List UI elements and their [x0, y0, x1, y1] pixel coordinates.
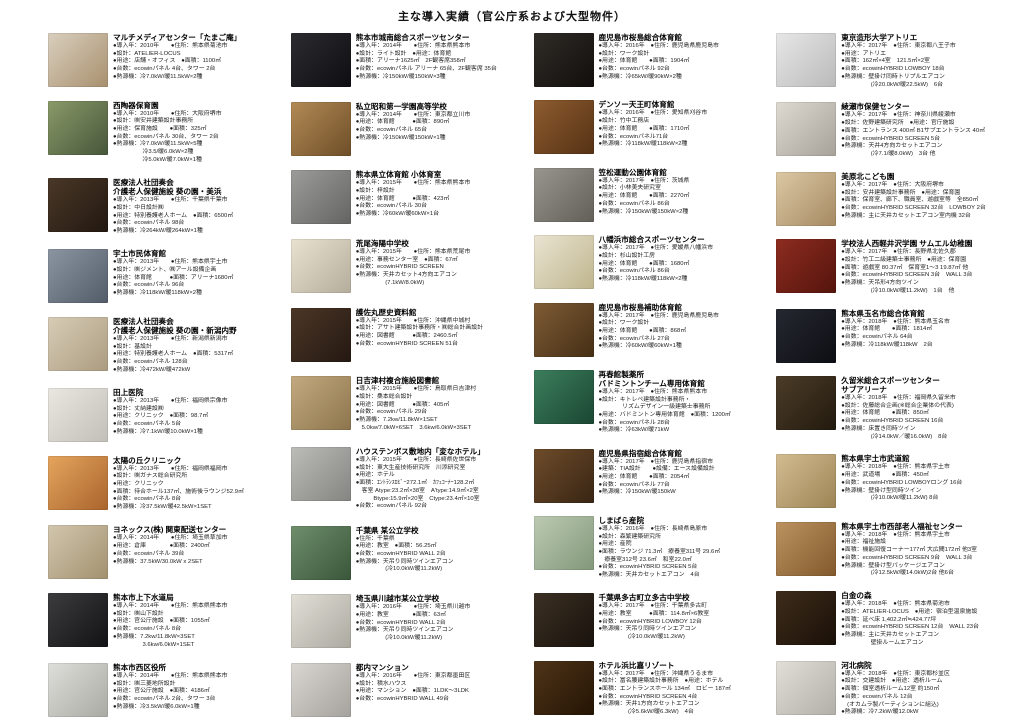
facility-detail-line: ●用途：図書館 ●面積：2460.5㎡	[356, 333, 527, 341]
facility-detail-line: ●設計：竹工二級建築士事務所 ●用途：保育園	[841, 257, 1012, 265]
case-entry: 都内マンション ●導入年：2016年 ●住所：東京都墨田区●設計：積水ハウス●用…	[291, 663, 527, 717]
facility-photo	[534, 449, 594, 503]
page-header: 主な導入実績（官公庁系および大型物件）	[0, 0, 1024, 25]
facility-detail-line: ●建築：TIA設計 ●設備：エース設備設計	[599, 466, 770, 474]
facility-info: 鹿児島市桜島補助体育館 ●導入年：2017年 ●住所：鹿児島県鹿児島市●設計：ワ…	[599, 303, 770, 357]
facility-detail-line: ●熱源機：天井カセット4方向エアコン	[356, 272, 527, 280]
facility-name: ハウステンボス敷地内「変なホテル」	[356, 447, 527, 456]
facility-detail-line: ●台数：ecowinHYBRID SCREEN 12台 WALL 23台	[841, 624, 1012, 632]
facility-detail-line: ●面積：アリーナ1625㎡ 2F観客席358㎡	[356, 58, 527, 66]
case-entry: 太陽の丘クリニック ●導入年：2013年 ●住所：福岡県福岡市●設計：㈱ガナス総…	[48, 456, 284, 512]
facility-photo	[534, 168, 594, 222]
facility-detail-line: ●台数：ecowinパネル 98台	[113, 220, 284, 228]
facility-info: 宇土市民体育館 ●導入年：2013年 ●住所：熊本県宇土市●設計：㈱ジメント、㈱…	[113, 249, 284, 303]
facility-detail-line: 冷5.0kW/暖7.0kW×1種	[113, 157, 284, 165]
facility-detail-line: ●熱源機：冷118kW/暖118kW×2種	[599, 141, 770, 149]
case-entry: デンソー天王町体育館 ●導入年：2016年 ●住所：愛知県刈谷市●設計：竹中工務…	[534, 100, 770, 154]
facility-detail-line: ●用途：体育館 ●面積：2054㎡	[599, 474, 770, 482]
facility-detail-line: ●導入年：2015年 ●住所：熊本県熊本市	[356, 180, 527, 188]
facility-detail-line: (冷10.0kW/暖11.2kW)	[356, 566, 527, 574]
facility-photo	[776, 591, 836, 645]
facility-detail-line: ●台数：ecowinパネル 39台	[113, 551, 284, 559]
facility-name: 医療法人社団奏会 介護老人保健施設 葵の園・美浜	[113, 178, 284, 196]
facility-detail-line: ●熱源機：主に天井カセットエアコン	[841, 632, 1012, 640]
facility-detail-line: ●導入年：2014年 ●住所：熊本県熊本市	[113, 673, 284, 681]
facility-info: 熊本市城南総合スポーツセンター ●導入年：2014年 ●住所：熊本県熊本市●設計…	[356, 33, 527, 87]
facility-info: 埼玉県川越市某公立学校 ●導入年：2016年 ●住所：埼玉県川越市●用途：教室 …	[356, 594, 527, 648]
facility-name: 荒尾海陽中学校	[356, 239, 527, 248]
facility-name: 宇土市民体育館	[113, 249, 284, 258]
facility-detail-line: ●台数：ecowinパネル 4台、タワー 2台	[113, 66, 284, 74]
facility-name: 日吉津村複合施設図書館	[356, 376, 527, 385]
facility-detail-line: ●面積：エントランス 400㎡ B1サブエントランス 40㎡	[841, 128, 1012, 136]
facility-detail-line: ●熱源機：冷118kW/暖118kW 2台	[841, 342, 1012, 350]
facility-detail-line: ●台数：ecowinパネル 64台	[841, 334, 1012, 342]
facility-detail-line: ●導入年：2017年 ●住所：大阪府堺市	[841, 182, 1012, 190]
facility-photo	[291, 663, 351, 717]
facility-detail-line: ●導入年：2010年 ●住所：熊本県菊池市	[113, 43, 284, 51]
facility-detail-line: ●用途：マンション ●面積：1LDK〜3LDK	[356, 688, 527, 696]
facility-detail-line: ●導入年：2016年 ●住所：埼玉県川越市	[356, 604, 527, 612]
case-entry: 八幡浜市総合スポーツセンター ●導入年：2017年 ●住所：愛媛県八幡浜市●設計…	[534, 235, 770, 289]
case-entry: 綾瀬市保健センター ●導入年：2017年 ●住所：神奈川県綾瀬市●設計：佐野建築…	[776, 102, 1012, 158]
facility-detail-line: 3.6kw/6.0kW×1SET	[113, 642, 284, 650]
facility-name: 鹿児島市桜島総合体育館	[599, 33, 770, 42]
facility-photo	[776, 522, 836, 576]
facility-detail-line: ●熱源機：冷264kW/暖264kW×1種	[113, 228, 284, 236]
facility-detail-line: ●台数：ecowinパネル 12台	[841, 694, 1012, 702]
facility-detail-line: ●台数：ecowinパネル 2台、タワー 3台	[113, 696, 284, 704]
facility-photo	[48, 249, 108, 303]
facility-info: 熊本県宇土市西部老人福祉センター ●導入年：2018年 ●住所：熊本県宇土市●用…	[841, 522, 1012, 578]
facility-detail-line: ●熱源機：冷118kW/暖118kW×2種	[599, 276, 770, 284]
facility-photo	[776, 309, 836, 363]
facility-name: 白金の森	[841, 591, 1012, 600]
facility-detail-line: ●熱源機：7.2kw/11.8kW×3SET	[113, 634, 284, 642]
facility-detail-line: ●用途：教室 ●面積：114.8㎡×6教室	[599, 611, 770, 619]
facility-detail-line: ●導入年：2018年 ●住所：福岡県久留米市	[841, 395, 1012, 403]
facility-detail-line: ●導入年：2017年 ●住所：東京都八王子市	[841, 43, 1012, 51]
facility-photo	[776, 376, 836, 430]
facility-detail-line: ●熱源機：天吊り同時ツインエアコン	[356, 627, 527, 635]
facility-name: 田上医院	[113, 388, 284, 397]
facility-photo	[776, 102, 836, 156]
facility-detail-line: ●導入年：2013年 ●住所：熊本県宇土市	[113, 259, 284, 267]
facility-detail-line: ●熱源機：冷150kW/暖150kW×2種	[599, 209, 770, 217]
facility-name: 東京造形大学アトリエ	[841, 33, 1012, 42]
facility-photo	[534, 370, 594, 424]
facility-detail-line: ●熱源機：天井4方向カセットエアコン	[841, 143, 1012, 151]
facility-detail-line: ●面積：個室透析ルーム12室 約150㎡	[841, 686, 1012, 694]
case-entry: 熊本市城南総合スポーツセンター ●導入年：2014年 ●住所：熊本県熊本市●設計…	[291, 33, 527, 87]
facility-detail-line: ●導入年：2017年 ●住所：長野県北佐久郡	[841, 249, 1012, 257]
facility-detail-line: ●台数：ecowinパネル 8台	[113, 626, 284, 634]
facility-detail-line: ●設計：冨名腰建築設計事務所 ●用途：ホテル	[599, 678, 770, 686]
facility-detail-line: ●導入年：2017年 ●住所：熊本県熊本市	[599, 389, 770, 397]
facility-info: 八幡浜市総合スポーツセンター ●導入年：2017年 ●住所：愛媛県八幡浜市●設計…	[599, 235, 770, 289]
case-entry: 医療法人社団奏会 介護老人保健施設 葵の園・美浜 ●導入年：2013年 ●住所：…	[48, 178, 284, 236]
facility-name: デンソー天王町体育館	[599, 100, 770, 109]
case-entry: 熊本県宇土市西部老人福祉センター ●導入年：2018年 ●住所：熊本県宇土市●用…	[776, 522, 1012, 578]
case-entry: 鹿児島市桜島総合体育館 ●導入年：2016年 ●住所：鹿児島県鹿児島市●設計：ワ…	[534, 33, 770, 87]
case-entry: 医療法人社団奏会 介護老人保健施設 葵の園・新潟内野 ●導入年：2013年 ●住…	[48, 317, 284, 375]
facility-photo	[291, 376, 351, 430]
facility-detail-line: ●面積：162㎡×4室 121.5㎡×2室	[841, 58, 1012, 66]
facility-detail-line: ●熱源機：冷7.2kW/暖12.0kW	[841, 709, 1012, 717]
facility-photo	[48, 317, 108, 371]
facility-photo	[48, 663, 108, 717]
facility-detail-line: ●台数：ecowinパネル 65台	[356, 127, 527, 135]
facility-photo	[291, 526, 351, 580]
facility-detail-line: ●用途：クリニック	[113, 481, 284, 489]
facility-name: 河北病院	[841, 661, 1012, 670]
facility-detail-line: (冷12.5kW/暖14.0kW)2台 他6台	[841, 570, 1012, 578]
facility-detail-line: ●導入年：2014年 ●住所：熊本県熊本市	[113, 603, 284, 611]
case-entry: 白金の森 ●導入年：2018年 ●住所：熊本県菊池市●設計：ATELIER-LO…	[776, 591, 1012, 647]
facility-detail-line: ●設計：㈱ガナス総合研究所	[113, 473, 284, 481]
facility-name: 熊本県宇土市西部老人福祉センター	[841, 522, 1012, 531]
facility-detail-line: ●面積：保育室、廊下、職員室、遊戯室等 全850㎡	[841, 197, 1012, 205]
facility-detail-line: ●用途：店舗・オフィス ●面積：1100㎡	[113, 58, 284, 66]
facility-name: 埼玉県川越市某公立学校	[356, 594, 527, 603]
facility-detail-line: ●熱源機：冷7.1kW/暖10.0kW×1種	[113, 429, 284, 437]
facility-name: ホテル浜比嘉リゾート	[599, 661, 770, 670]
facility-info: 熊本県宇土市武道館 ●導入年：2018年 ●住所：熊本県宇土市●用途：武道場 ●…	[841, 454, 1012, 508]
case-entry: 荒尾海陽中学校 ●導入年：2015年 ●住所：熊本県荒尾市●用途：事務センター室…	[291, 239, 527, 293]
facility-detail-line: ●台数：ecowinHYBRID SCREEN 16台	[841, 418, 1012, 426]
facility-info: 私立昭和第一学園高等学校 ●導入年：2014年 ●住所：東京都立川市●用途：体育…	[356, 102, 527, 156]
facility-photo	[291, 33, 351, 87]
case-entry: 鹿児島市桜島補助体育館 ●導入年：2017年 ●住所：鹿児島県鹿児島市●設計：ワ…	[534, 303, 770, 357]
facility-name: 千葉県多古町立多古中学校	[599, 593, 770, 602]
facility-name: 千葉県 某公立学校	[356, 526, 527, 535]
case-entry: 熊本県宇土市武道館 ●導入年：2018年 ●住所：熊本県宇土市●用途：武道場 ●…	[776, 454, 1012, 508]
column-1: マルチメディアセンター「たまご庵」 ●導入年：2010年 ●住所：熊本県菊池市●…	[48, 33, 284, 717]
case-entry: 田上医院 ●導入年：2013年 ●住所：福岡県宗像市●設計：丈納建設㈱●用途：ク…	[48, 388, 284, 442]
facility-detail-line: ●導入年：2013年 ●住所：千葉県千葉市	[113, 197, 284, 205]
case-entry: しまばら産院 ●導入年：2016年 ●住所：長崎県島原市●設計：森繁建築研究所●…	[534, 516, 770, 580]
facility-detail-line: ●台数：ecowinHYBRID WALL 49台	[356, 696, 527, 704]
case-entry: 鹿児島県指宿総合体育館 ●導入年：2017年 ●住所：鹿児島県指宿市●建築：TI…	[534, 449, 770, 503]
facility-detail-line: ●熱源機：冷37.5kW/暖42.5kW×1SET	[113, 504, 284, 512]
facility-photo	[48, 456, 108, 510]
facility-detail-line: ●設計：アサト建築設計事務所・㈱総合計画設計	[356, 325, 527, 333]
facility-detail-line: ●設計：杉山設計工房	[599, 253, 770, 261]
facility-info: 護佐丸歴史資料館 ●導入年：2015年 ●住所：沖縄県中城村●設計：アサト建築設…	[356, 308, 527, 362]
facility-info: 日吉津村複合施設図書館 ●導入年：2015年 ●住所：鳥取県日吉津村●設計：桑本…	[356, 376, 527, 432]
facility-detail-line: (冷14.0kW／暖16.0kW) 8台	[841, 434, 1012, 442]
facility-detail-line: ●台数：ecowinパネル 86台	[599, 268, 770, 276]
facility-detail-line: ●面積：機能回復コーナー177㎡ 大広間172㎡ 他3室	[841, 547, 1012, 555]
facility-detail-line: 冷3.5/暖6.0kW×2種	[113, 149, 284, 157]
facility-detail-line: ●面積：エントランスホール 134㎡ ロビー 187㎡	[599, 686, 770, 694]
facility-detail-line: ●熱源機：冷7.0kW/暖11.5kW×5種	[113, 141, 284, 149]
facility-detail-line: ●用途：教室 ●面積：56.25㎡	[356, 543, 527, 551]
facility-detail-line: ●用途：倉庫 ●面積：2400㎡	[113, 543, 284, 551]
case-entry: 熊本市西区役所 ●導入年：2014年 ●住所：熊本県熊本市●設計：㈱三菱地所設計…	[48, 663, 284, 717]
facility-photo	[291, 102, 351, 156]
facility-name: 私立昭和第一学園高等学校	[356, 102, 527, 111]
facility-info: 千葉県多古町立多古中学校 ●導入年：2017年 ●住所：千葉県多古町●用途：教室…	[599, 593, 770, 647]
facility-name: 鹿児島市桜島補助体育館	[599, 303, 770, 312]
facility-detail-line: ●熱源機：冷150kW/暖150kW×1種	[356, 135, 527, 143]
facility-info: 久留米総合スポーツセンター サブアリーナ ●導入年：2018年 ●住所：福岡県久…	[841, 376, 1012, 441]
facility-name: マルチメディアセンター「たまご庵」	[113, 33, 284, 42]
facility-detail-line: ●設計：㈱ジメント、㈱アール設備企画	[113, 267, 284, 275]
case-entry: 河北病院 ●導入年：2018年 ●住所：東京都杉並区●設計：交建設計 ●用途：透…	[776, 661, 1012, 717]
facility-detail-line: ●設計：ATELIER-LOCUS ●用途：宿泊型温泉施設	[841, 609, 1012, 617]
facility-detail-line: ●設計：中日設計㈱	[113, 205, 284, 213]
facility-photo	[291, 594, 351, 648]
facility-name: 笠松運動公園体育館	[599, 168, 770, 177]
facility-name: 都内マンション	[356, 663, 527, 672]
facility-detail-line: ●熱源機：冷7.0kW/暖11.5kW×2種	[113, 74, 284, 82]
facility-photo	[291, 239, 351, 293]
facility-info: 美原北こども園 ●導入年：2017年 ●住所：大阪府堺市●設計：安井建築設計事務…	[841, 172, 1012, 226]
case-entry: 熊本市上下水道局 ●導入年：2014年 ●住所：熊本県熊本市●設計：㈱山下設計●…	[48, 593, 284, 649]
facility-detail-line: ●設計：ワーク設計	[599, 320, 770, 328]
case-entry: 熊本県立体育館 小体育室 ●導入年：2015年 ●住所：熊本県熊本市●設計：梓設…	[291, 170, 527, 224]
facility-detail-line: ●用途：体育館 ●面積：868㎡	[599, 328, 770, 336]
facility-name: 西陶器保育園	[113, 101, 284, 110]
facility-photo	[48, 101, 108, 155]
facility-detail-line: ●熱源機：冷3.5kW/暖6.0kW×1種	[113, 704, 284, 712]
facility-detail-line: ●設計：㈱安井建築設計事務所	[113, 118, 284, 126]
facility-info: 鹿児島県指宿総合体育館 ●導入年：2017年 ●住所：鹿児島県指宿市●建築：TI…	[599, 449, 770, 503]
facility-detail-line: ●設計：梓設計	[356, 188, 527, 196]
facility-name: 学校法人西軽井沢学園 サムエル幼稚園	[841, 239, 1012, 248]
facility-detail-line: ●熱源機：天井カセットエアコン 4台	[599, 572, 770, 580]
facility-detail-line: ●熱源機：冷63kW/暖71kW	[599, 427, 770, 435]
facility-info: 熊本県立体育館 小体育室 ●導入年：2015年 ●住所：熊本県熊本市●設計：梓設…	[356, 170, 527, 224]
facility-photo	[534, 593, 594, 647]
facility-detail-line: ●用途：産院	[599, 541, 770, 549]
facility-detail-line: ●導入年：2016年 ●住所：長崎県島原市	[599, 526, 770, 534]
facility-detail-line: ●熱源機：冷65kW/暖90kW×2種	[599, 74, 770, 82]
facility-detail-line: ●熱源機：冷60kW/暖60kW×1台	[356, 211, 527, 219]
facility-info: 白金の森 ●導入年：2018年 ●住所：熊本県菊池市●設計：ATELIER-LO…	[841, 591, 1012, 647]
facility-photo	[534, 303, 594, 357]
facility-info: 熊本県玉名市総合体育館 ●導入年：2018年 ●住所：熊本県玉名市●用途：体育館…	[841, 309, 1012, 363]
facility-name: 久留米総合スポーツセンター サブアリーナ	[841, 376, 1012, 394]
column-3: 鹿児島市桜島総合体育館 ●導入年：2016年 ●住所：鹿児島県鹿児島市●設計：ワ…	[534, 33, 770, 717]
facility-detail-line: (冷10.0kW/暖11.2kW) 8台	[841, 495, 1012, 503]
facility-detail-line: ●熱源機：冷472kW/暖472kW	[113, 367, 284, 375]
case-entry: 千葉県多古町立多古中学校 ●導入年：2017年 ●住所：千葉県多古町●用途：教室…	[534, 593, 770, 647]
facility-name: ヨネックス(株) 関東配送センター	[113, 525, 284, 534]
facility-detail-line: ●用途：特別養護老人ホーム ●面積：5317㎡	[113, 351, 284, 359]
facility-detail-line: ●導入年：2013年 ●住所：福岡県宗像市	[113, 398, 284, 406]
case-entry: マルチメディアセンター「たまご庵」 ●導入年：2010年 ●住所：熊本県菊池市●…	[48, 33, 284, 87]
case-entry: 笠松運動公園体育館 ●導入年：2017年 ●住所：茨城県●設計：小林美夫研究室●…	[534, 168, 770, 222]
case-entry: 久留米総合スポーツセンター サブアリーナ ●導入年：2018年 ●住所：福岡県久…	[776, 376, 1012, 441]
facility-detail-line: ●用途：体育館 ●面積：850㎡	[841, 410, 1012, 418]
facility-detail-line: (7.1kW/8.0kW)	[356, 280, 527, 288]
facility-photo	[48, 388, 108, 442]
case-entry: 東京造形大学アトリエ ●導入年：2017年 ●住所：東京都八王子市●用途：アトリ…	[776, 33, 1012, 89]
facility-info: しまばら産院 ●導入年：2016年 ●住所：長崎県島原市●設計：森繁建築研究所●…	[599, 516, 770, 580]
facility-photo	[534, 661, 594, 715]
facility-info: 学校法人西軽井沢学園 サムエル幼稚園 ●導入年：2017年 ●住所：長野県北佐久…	[841, 239, 1012, 295]
facility-detail-line: ●台数：ecowinパネル 92台	[599, 66, 770, 74]
facility-photo	[534, 33, 594, 87]
facility-detail-line: ●導入年：2016年 ●住所：愛知県刈谷市	[599, 110, 770, 118]
facility-detail-line: リズムデザイン一級建築士事務所	[599, 404, 770, 412]
facility-detail-line: (冷7.1/暖8.0kW) 3台 他	[841, 151, 1012, 159]
facility-info: 河北病院 ●導入年：2018年 ●住所：東京都杉並区●設計：交建設計 ●用途：透…	[841, 661, 1012, 717]
case-entry: 千葉県 某公立学校 ●住所：千葉県●用途：教室 ●面積：56.25㎡●台数：ec…	[291, 526, 527, 580]
facility-detail-line: 5.0kw/7.0kW×6SET 3.6kw/6.0kW×3SET	[356, 425, 527, 433]
facility-info: 医療法人社団奏会 介護老人保健施設 葵の園・新潟内野 ●導入年：2013年 ●住…	[113, 317, 284, 375]
facility-detail-line: ●熱源機：冷118kW/暖118kW×2種	[113, 290, 284, 298]
facility-info: 太陽の丘クリニック ●導入年：2013年 ●住所：福岡県福岡市●設計：㈱ガナス総…	[113, 456, 284, 512]
facility-detail-line: ●導入年：2015年 ●住所：熊本県荒尾市	[356, 249, 527, 257]
facility-detail-line: ●導入年：2017年 ●住所：千葉県多古町	[599, 603, 770, 611]
facility-photo	[776, 454, 836, 508]
facility-name: 太陽の丘クリニック	[113, 456, 284, 465]
facility-photo	[534, 100, 594, 154]
facility-detail-line: ●導入年：2016年 ●住所：東京都墨田区	[356, 673, 527, 681]
facility-detail-line: ●導入年：2016年 ●住所：鹿児島県鹿児島市	[599, 43, 770, 51]
facility-detail-line: ●用途：福祉施設	[841, 539, 1012, 547]
case-entry: ハウステンボス敷地内「変なホテル」 ●導入年：2015年 ●住所：長崎県佐世保市…	[291, 447, 527, 511]
facility-detail-line: ●用途：体育館 ●面積：890㎡	[356, 119, 527, 127]
facility-detail-line: (冷10.0kW/暖11.2kW) 1台 他	[841, 288, 1012, 296]
facility-detail-line: ●面積：ｴﾝﾄﾗﾝｽﾛﾋﾞｰ272.1㎡ ｶﾌｪｺｰﾅｰ128.2㎡	[356, 480, 527, 488]
facility-detail-line: ●熱源機：床置き同時ツイン	[841, 426, 1012, 434]
facility-photo	[48, 593, 108, 647]
facility-info: 田上医院 ●導入年：2013年 ●住所：福岡県宗像市●設計：丈納建設㈱●用途：ク…	[113, 388, 284, 442]
facility-detail-line: ●台数：ecowinパネル アリーナ 65台、2F観客席 35台	[356, 66, 527, 74]
facility-name: 熊本県立体育館 小体育室	[356, 170, 527, 179]
facility-photo	[776, 172, 836, 226]
facility-photo	[776, 661, 836, 715]
facility-info: デンソー天王町体育館 ●導入年：2016年 ●住所：愛知県刈谷市●設計：竹中工務…	[599, 100, 770, 154]
facility-info: 熊本市西区役所 ●導入年：2014年 ●住所：熊本県熊本市●設計：㈱三菱地所設計…	[113, 663, 284, 717]
facility-detail-line: ●用途：バドミントン専用体育館 ●面積：1200㎡	[599, 412, 770, 420]
case-entry: 西陶器保育園 ●導入年：2010年 ●住所：大阪府堺市●設計：㈱安井建築設計事務…	[48, 101, 284, 165]
facility-detail-line: ●導入年：2013年 ●住所：新潟県新潟市	[113, 336, 284, 344]
facility-detail-line: ●導入年：2015年 ●住所：長崎県佐世保市	[356, 457, 527, 465]
facility-detail-line: ●台数：ecowinパネル 128台	[113, 359, 284, 367]
facility-name: 医療法人社団奏会 介護老人保健施設 葵の園・新潟内野	[113, 317, 284, 335]
facility-detail-line: ●熱源機：冷150kW/暖150kW	[599, 489, 770, 497]
facility-detail-line: ●用途：教室 ●面積：63㎡	[356, 612, 527, 620]
facility-detail-line: ●台数：ecowinパネル 86台	[599, 201, 770, 209]
facility-info: 笠松運動公園体育館 ●導入年：2017年 ●住所：茨城県●設計：小林美夫研究室●…	[599, 168, 770, 222]
facility-detail-line: ●用途：保育施設 ●面積：325㎡	[113, 126, 284, 134]
facility-detail-line: ●台数：ecowinHYBRID SCREEN 3台 WALL 3台	[841, 272, 1012, 280]
facility-detail-line: (冷20.0kW/暖22.5kW) 6台	[841, 82, 1012, 90]
case-entry: 宇土市民体育館 ●導入年：2013年 ●住所：熊本県宇土市●設計：㈱ジメント、㈱…	[48, 249, 284, 303]
facility-name: 綾瀬市保健センター	[841, 102, 1012, 111]
case-entry: 埼玉県川越市某公立学校 ●導入年：2016年 ●住所：埼玉県川越市●用途：教室 …	[291, 594, 527, 648]
case-entry: ホテル浜比嘉リゾート ●導入年：2017年 ●住所：沖縄県うるま市●設計：冨名腰…	[534, 661, 770, 717]
case-entry: 学校法人西軽井沢学園 サムエル幼稚園 ●導入年：2017年 ●住所：長野県北佐久…	[776, 239, 1012, 295]
facility-detail-line: ●用途：体育館 ●面積：1710㎡	[599, 126, 770, 134]
facility-detail-line: ●面積：ラウンジ 71.3㎡ 療養室311号 29.6㎡	[599, 549, 770, 557]
page-title: 主な導入実績（官公庁系および大型物件）	[398, 11, 626, 23]
facility-detail-line: 客室 Atype:23.2㎡×38室 A'type:14.9㎡×2室	[356, 488, 527, 496]
facility-detail-line: ●台数：ecowinパネル 8台	[113, 496, 284, 504]
facility-detail-line: ●台数：ecowinHYBRID SCREEN 51台	[356, 341, 527, 349]
facility-info: ハウステンボス敷地内「変なホテル」 ●導入年：2015年 ●住所：長崎県佐世保市…	[356, 447, 527, 511]
facility-name: 再春館製薬所 バドミントンチーム専用体育館	[599, 370, 770, 388]
case-entry: 再春館製薬所 バドミントンチーム専用体育館 ●導入年：2017年 ●住所：熊本県…	[534, 370, 770, 435]
facility-name: 護佐丸歴史資料館	[356, 308, 527, 317]
facility-name: 熊本県宇土市武道館	[841, 454, 1012, 463]
facility-info: 綾瀬市保健センター ●導入年：2017年 ●住所：神奈川県綾瀬市●設計：佐野建築…	[841, 102, 1012, 158]
facility-detail-line: ●熱源機：7.2kw/11.8kW×1SET	[356, 417, 527, 425]
facility-photo	[291, 447, 351, 501]
facility-detail-line: ●導入年：2014年 ●住所：熊本県熊本市	[356, 43, 527, 51]
case-entry: 熊本県玉名市総合体育館 ●導入年：2018年 ●住所：熊本県玉名市●用途：体育館…	[776, 309, 1012, 363]
facility-detail-line: ●導入年：2018年 ●住所：熊本県菊池市	[841, 601, 1012, 609]
facility-detail-line: ●用途：官公庁施設 ●面積：4186㎡	[113, 688, 284, 696]
facility-detail-line: ●熱源機：冷60kW/暖60kW×1種	[599, 343, 770, 351]
facility-detail-line: ●導入年：2015年 ●住所：鳥取県日吉津村	[356, 386, 527, 394]
facility-detail-line: ●台数：ecowinパネル 92台	[356, 503, 527, 511]
facility-detail-line: ●熱源機：天吊り同時ツインエアコン	[599, 626, 770, 634]
facility-detail-line: ●台数：ecowinHYBRID SCREEN 9台 WALL 3台	[841, 555, 1012, 563]
facility-detail-line: ●用途：体育館 ●面積：1904㎡	[599, 58, 770, 66]
facility-name: 熊本市上下水道局	[113, 593, 284, 602]
case-entry: 日吉津村複合施設図書館 ●導入年：2015年 ●住所：鳥取県日吉津村●設計：桑本…	[291, 376, 527, 432]
facility-info: 鹿児島市桜島総合体育館 ●導入年：2016年 ●住所：鹿児島県鹿児島市●設計：ワ…	[599, 33, 770, 87]
facility-name: 熊本市城南総合スポーツセンター	[356, 33, 527, 42]
facility-name: しまばら産院	[599, 516, 770, 525]
facility-info: 都内マンション ●導入年：2016年 ●住所：東京都墨田区●設計：積水ハウス●用…	[356, 663, 527, 717]
facility-info: 東京造形大学アトリエ ●導入年：2017年 ●住所：東京都八王子市●用途：アトリ…	[841, 33, 1012, 89]
facility-detail-line: ●設計：竹中工務店	[599, 118, 770, 126]
facility-detail-line: 壁掛ルームエアコン	[841, 640, 1012, 648]
facility-detail-line: ●設計：桑本総合設計	[356, 394, 527, 402]
facility-info: 西陶器保育園 ●導入年：2010年 ●住所：大阪府堺市●設計：㈱安井建築設計事務…	[113, 101, 284, 165]
facility-photo	[534, 516, 594, 570]
facility-info: 熊本市上下水道局 ●導入年：2014年 ●住所：熊本県熊本市●設計：㈱山下設計●…	[113, 593, 284, 649]
facility-name: 熊本市西区役所	[113, 663, 284, 672]
facility-detail-line: ●熱源機：冷150kW/暖150kW×3種	[356, 74, 527, 82]
facility-detail-line: ●用途：クリニック ●面積：98.7㎡	[113, 413, 284, 421]
facility-photo	[48, 525, 108, 579]
facility-detail-line: ●用途：体育館 ●面積：2270㎡	[599, 193, 770, 201]
facility-info: 荒尾海陽中学校 ●導入年：2015年 ●住所：熊本県荒尾市●用途：事務センター室…	[356, 239, 527, 293]
facility-detail-line: ●台数：ecowinパネル 96台	[113, 282, 284, 290]
facility-detail-line: ●台数：ecowinパネル 5台	[113, 421, 284, 429]
facility-photo	[291, 308, 351, 362]
facility-info: マルチメディアセンター「たまご庵」 ●導入年：2010年 ●住所：熊本県菊池市●…	[113, 33, 284, 87]
column-4: 東京造形大学アトリエ ●導入年：2017年 ●住所：東京都八王子市●用途：アトリ…	[776, 33, 1012, 717]
case-entry: 護佐丸歴史資料館 ●導入年：2015年 ●住所：沖縄県中城村●設計：アサト建築設…	[291, 308, 527, 362]
facility-photo	[776, 33, 836, 87]
facility-detail-line: ●用途：体育館 ●面積：1814㎡	[841, 326, 1012, 334]
facility-detail-line: ●用途：官公庁施設 ●面積：1055㎡	[113, 618, 284, 626]
facility-detail-line: ●台数：ecowinパネル 30台	[356, 203, 527, 211]
facility-detail-line: (冷5.6kW/暖6.3kW) 4台	[599, 709, 770, 717]
case-study-grid: マルチメディアセンター「たまご庵」 ●導入年：2010年 ●住所：熊本県菊池市●…	[0, 25, 1024, 717]
case-entry: 私立昭和第一学園高等学校 ●導入年：2014年 ●住所：東京都立川市●用途：体育…	[291, 102, 527, 156]
facility-name: 鹿児島県指宿総合体育館	[599, 449, 770, 458]
facility-name: 美原北こども園	[841, 172, 1012, 181]
facility-detail-line: ●熱源機：主に天井カセットエアコン室内機 32台	[841, 213, 1012, 221]
facility-photo	[291, 170, 351, 224]
facility-info: 千葉県 某公立学校 ●住所：千葉県●用途：教室 ●面積：56.25㎡●台数：ec…	[356, 526, 527, 580]
facility-detail-line: ●熱源機：37.5kW/30.0kW x 2SET	[113, 559, 284, 567]
facility-info: ホテル浜比嘉リゾート ●導入年：2017年 ●住所：沖縄県うるま市●設計：冨名腰…	[599, 661, 770, 717]
facility-name: 八幡浜市総合スポーツセンター	[599, 235, 770, 244]
facility-detail-line: ●設計：交建設計 ●用途：透析ルーム	[841, 678, 1012, 686]
facility-detail-line: (冷10.0kW/暖11.2kW)	[599, 634, 770, 642]
